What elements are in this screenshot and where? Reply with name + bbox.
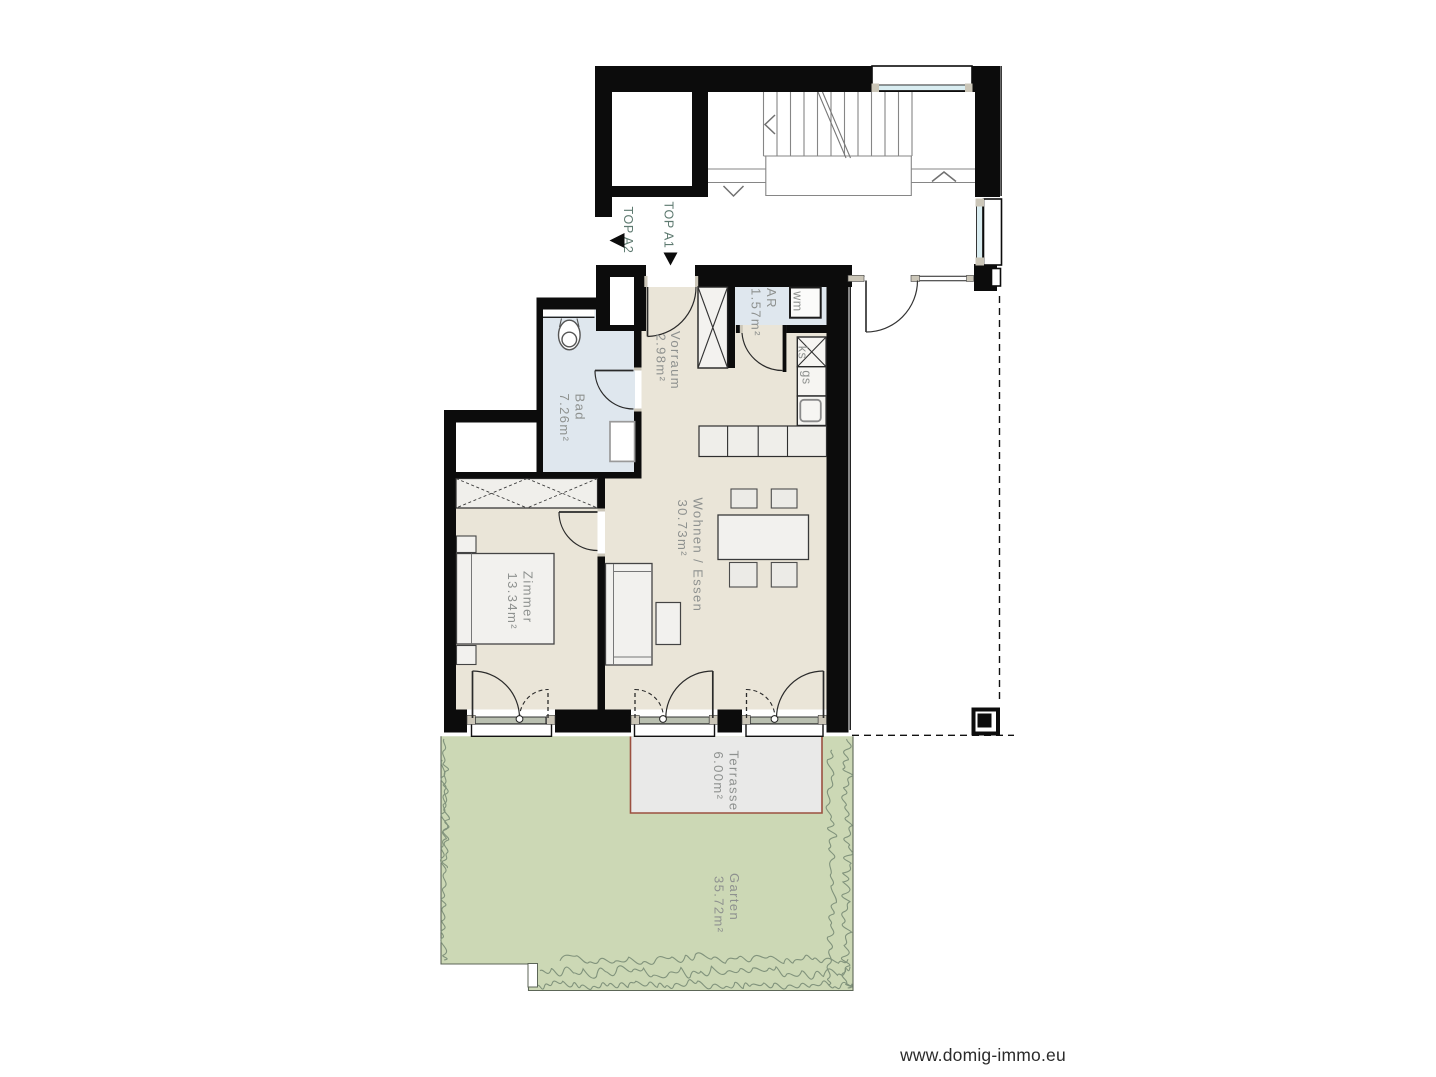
svg-text:Zimmer: Zimmer <box>521 571 536 623</box>
svg-text:AR: AR <box>764 288 779 309</box>
svg-text:7.26m²: 7.26m² <box>557 394 572 443</box>
svg-text:Terrasse: Terrasse <box>727 751 742 812</box>
svg-text:13.34m²: 13.34m² <box>505 573 520 631</box>
svg-text:6.00m²: 6.00m² <box>711 752 726 801</box>
svg-text:2.98m²: 2.98m² <box>654 334 669 383</box>
svg-text:Wohnen / Essen: Wohnen / Essen <box>691 498 706 613</box>
svg-text:35.72m²: 35.72m² <box>712 876 727 934</box>
svg-text:ks: ks <box>796 346 810 360</box>
svg-text:wm: wm <box>791 290 805 311</box>
svg-text:www.domig-immo.eu: www.domig-immo.eu <box>899 1045 1066 1065</box>
svg-text:1.57m²: 1.57m² <box>749 288 764 337</box>
svg-text:gs: gs <box>800 370 814 384</box>
svg-text:TOP A1: TOP A1 <box>662 202 676 249</box>
svg-text:Bad: Bad <box>573 394 588 421</box>
svg-text:Vorraum: Vorraum <box>668 331 683 390</box>
svg-text:Garten: Garten <box>727 873 742 921</box>
svg-text:30.73m²: 30.73m² <box>675 500 690 558</box>
